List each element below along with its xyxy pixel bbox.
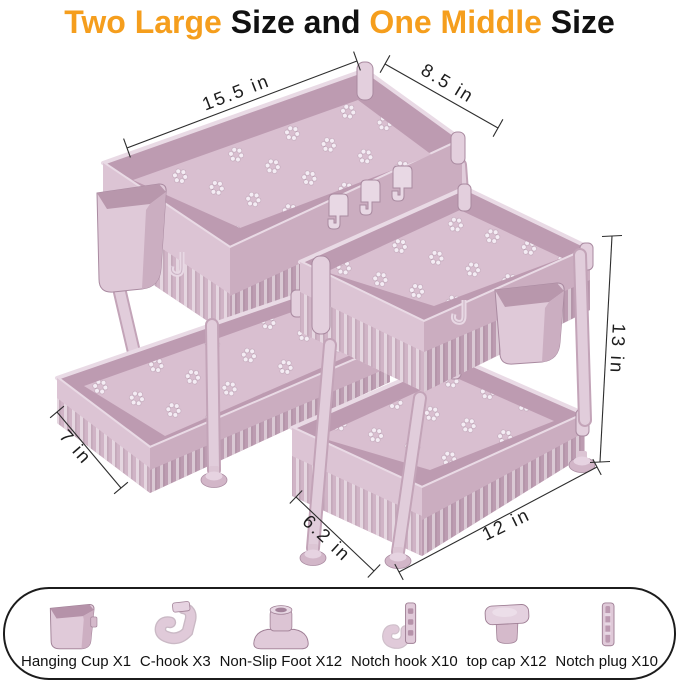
hanging-cup-right bbox=[495, 283, 564, 364]
accessories-panel: Hanging Cup X1 C-hook X3 Non-Slip Foot X… bbox=[3, 587, 676, 680]
accessory-label: Notch hook X10 bbox=[351, 653, 458, 672]
large-front-pole bbox=[212, 325, 214, 470]
accessory-label: C-hook X3 bbox=[140, 653, 211, 672]
product-infographic: Two Large Size and One Middle Size bbox=[0, 0, 679, 685]
accessory-non-slip-foot: Non-Slip Foot X12 bbox=[220, 598, 343, 672]
non-slip-foot bbox=[201, 466, 227, 488]
middle-right-pole bbox=[580, 255, 585, 420]
accessory-hanging-cup: Hanging Cup X1 bbox=[21, 598, 131, 672]
accessory-label: Notch plug X10 bbox=[555, 653, 658, 672]
accessory-top-cap: top cap X12 bbox=[467, 598, 547, 672]
non-slip-foot bbox=[385, 547, 411, 569]
accessory-notch-hook: Notch hook X10 bbox=[351, 598, 458, 672]
accessory-notch-plug: Notch plug X10 bbox=[555, 598, 658, 672]
organizers-illustration: 15.5 in 8.5 in 13 in 7 in bbox=[0, 0, 679, 685]
top-cap-icon bbox=[472, 598, 542, 653]
accessory-c-hook: C-hook X3 bbox=[140, 598, 211, 672]
hanging-cup-left bbox=[97, 184, 166, 292]
accessory-label: Non-Slip Foot X12 bbox=[220, 653, 343, 672]
notch-plug-icon bbox=[572, 598, 642, 653]
dim-label-middle-height: 13 in bbox=[606, 323, 630, 375]
hanging-cup-icon bbox=[41, 598, 111, 653]
dimension-13-in: 13 in bbox=[590, 236, 630, 463]
accessory-label: top cap X12 bbox=[467, 653, 547, 672]
non-slip-foot-icon bbox=[246, 598, 316, 653]
notch-hook-icon bbox=[369, 598, 439, 653]
accessory-label: Hanging Cup X1 bbox=[21, 653, 131, 672]
c-hook-icon bbox=[140, 598, 210, 653]
